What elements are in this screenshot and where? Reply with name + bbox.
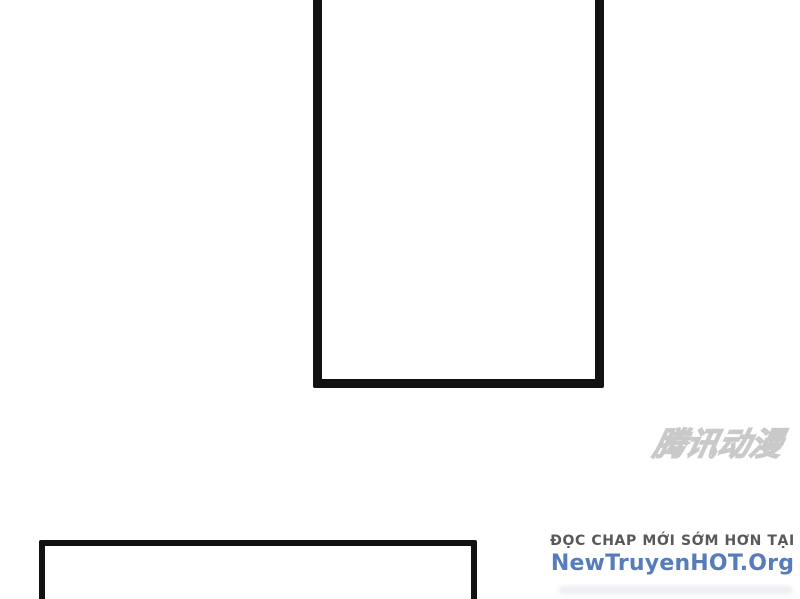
tencent-comics-watermark: 腾讯动漫 <box>650 424 800 466</box>
comic-panel-bottom <box>39 540 477 599</box>
comic-page: 腾讯动漫 ĐỌC CHAP MỚI SỚM HƠN TẠI NewTruyenH… <box>0 0 800 599</box>
comic-panel-top <box>313 0 604 388</box>
footer-ghost-smear <box>558 586 793 594</box>
footer-site-name: NewTruyenHOT.Org <box>545 551 800 576</box>
footer-tagline: ĐỌC CHAP MỚI SỚM HƠN TẠI <box>545 533 800 549</box>
footer-credit: ĐỌC CHAP MỚI SỚM HƠN TẠI NewTruyenHOT.Or… <box>545 533 800 576</box>
